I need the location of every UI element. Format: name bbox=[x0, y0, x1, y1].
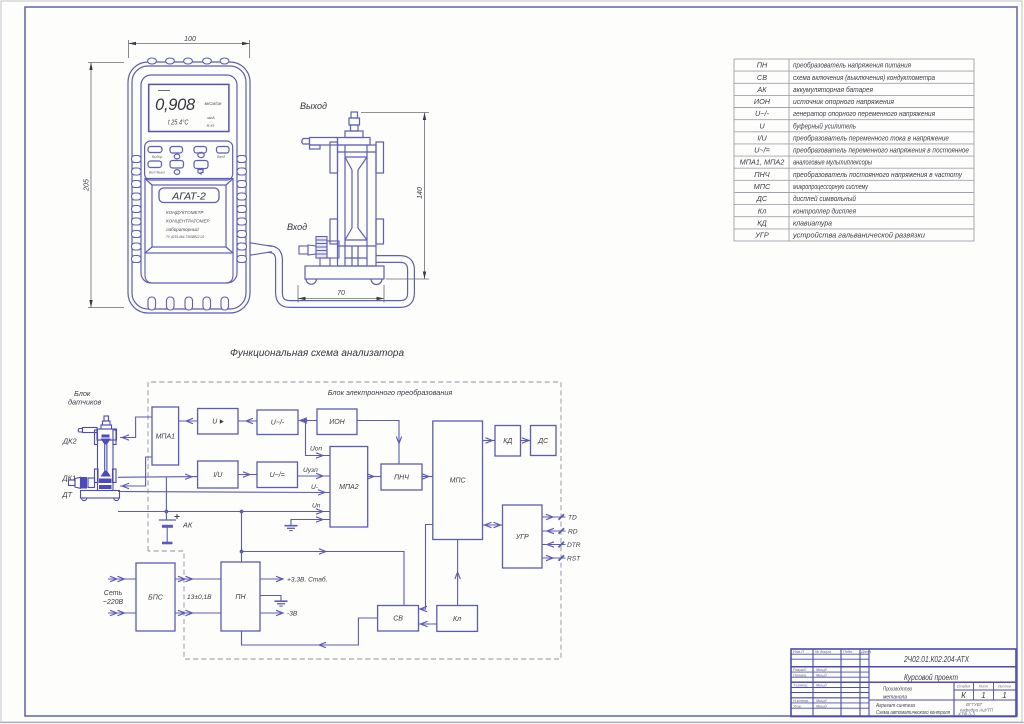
svg-text:Агрегат синтеза: Агрегат синтеза bbox=[875, 703, 915, 709]
svg-text:Провер.: Провер. bbox=[793, 673, 807, 677]
svg-text:Листов: Листов bbox=[997, 685, 1011, 689]
svg-text:Дата: Дата bbox=[860, 650, 871, 654]
svg-text:Функциональная схема анализато: Функциональная схема анализатора bbox=[230, 348, 405, 359]
svg-text:Uузп: Uузп bbox=[303, 467, 318, 474]
svg-text:дисплей символьный: дисплей символьный bbox=[793, 194, 856, 203]
svg-text:Блок электронного преобразован: Блок электронного преобразования bbox=[328, 388, 453, 397]
svg-text:МПС: МПС bbox=[754, 182, 771, 191]
svg-text:буферный усилитель: буферный усилитель bbox=[793, 121, 856, 130]
svg-text:контроллер дисплея: контроллер дисплея bbox=[793, 206, 856, 215]
svg-text:схема включения (выключения) к: схема включения (выключения) кондуктомет… bbox=[793, 73, 935, 82]
svg-text:генератор опорного переменного: генератор опорного переменного напряжени… bbox=[793, 109, 935, 118]
svg-text:Курсовой проект: Курсовой проект bbox=[904, 673, 958, 682]
svg-text:аккумуляторная батарея: аккумуляторная батарея bbox=[793, 85, 873, 94]
svg-text:ДС: ДС bbox=[537, 438, 549, 445]
svg-text:СВ: СВ bbox=[757, 73, 767, 82]
svg-text:Мищд: Мищд bbox=[816, 668, 827, 672]
svg-text:метанола: метанола bbox=[883, 695, 907, 701]
svg-text:Производство: Производство bbox=[883, 687, 912, 693]
svg-text:лабораторный: лабораторный bbox=[165, 226, 199, 232]
svg-text:АК: АК bbox=[182, 521, 193, 530]
svg-text:~220В: ~220В bbox=[103, 599, 124, 606]
svg-text:U: U bbox=[759, 121, 765, 130]
svg-text:АК: АК bbox=[756, 85, 767, 94]
svg-text:КД: КД bbox=[757, 218, 766, 227]
svg-text:ДТ: ДТ bbox=[62, 490, 73, 499]
svg-text:ИОН: ИОН bbox=[329, 419, 345, 426]
svg-text:RST: RST bbox=[567, 556, 581, 563]
svg-text:ТУ 4215-464-73638812-01: ТУ 4215-464-73638812-01 bbox=[166, 235, 204, 239]
svg-text:ДК1: ДК1 bbox=[62, 474, 77, 483]
svg-text:устройства гальванической разв: устройства гальванической развязки bbox=[792, 231, 925, 240]
svg-text:м.кг: м.кг bbox=[207, 123, 215, 128]
svg-text:Подп.: Подп. bbox=[843, 650, 853, 654]
svg-text:УГР: УГР bbox=[515, 534, 529, 541]
svg-text:№ докум.: № докум. bbox=[815, 650, 832, 654]
svg-text:мкА: мкА bbox=[207, 115, 215, 120]
svg-text:КД: КД bbox=[503, 438, 512, 445]
svg-text:DTR: DTR bbox=[567, 542, 581, 549]
svg-text:МПА2: МПА2 bbox=[339, 484, 359, 491]
svg-text:Утв.: Утв. bbox=[793, 704, 802, 708]
svg-text:ВГТУВТ: ВГТУВТ bbox=[966, 702, 982, 707]
svg-text:U~/-: U~/- bbox=[271, 420, 285, 427]
svg-text:Схема автоматического контроля: Схема автоматического контроля bbox=[876, 710, 950, 716]
svg-text:+3,3В. Стаб.: +3,3В. Стаб. bbox=[287, 576, 328, 584]
svg-text:Кл: Кл bbox=[758, 206, 766, 215]
svg-text:Un: Un bbox=[312, 503, 321, 510]
svg-text:1: 1 bbox=[981, 691, 985, 700]
svg-text:ПНЧ: ПНЧ bbox=[394, 474, 409, 481]
svg-text:преобразователь напряжения пит: преобразователь напряжения питания bbox=[793, 61, 911, 70]
svg-text:2Ч02.01.К02.204-АТХ: 2Ч02.01.К02.204-АТХ bbox=[903, 655, 969, 664]
svg-text:Т.контр.: Т.контр. bbox=[793, 684, 808, 688]
svg-text:микропроцессорную систему: микропроцессорную систему bbox=[793, 182, 869, 191]
svg-text:Н.контр.: Н.контр. bbox=[793, 699, 809, 703]
svg-text:УГР: УГР bbox=[754, 231, 769, 240]
svg-text:Мищд: Мищд bbox=[816, 704, 827, 708]
svg-text:100: 100 bbox=[184, 36, 196, 43]
svg-text:ХТФ-3-3: ХТФ-3-3 bbox=[957, 712, 975, 717]
svg-text:U~/=: U~/= bbox=[754, 146, 771, 155]
svg-text:140: 140 bbox=[417, 187, 424, 199]
svg-text:Вкл=Выкл: Вкл=Выкл bbox=[149, 171, 165, 175]
svg-text:клавиатура: клавиатура bbox=[793, 218, 832, 227]
svg-text:TD: TD bbox=[568, 515, 577, 522]
svg-text:0,908: 0,908 bbox=[155, 96, 196, 114]
svg-text:U-: U- bbox=[311, 484, 319, 491]
svg-text:Лист: Лист bbox=[978, 685, 988, 689]
svg-text:Uоп: Uоп bbox=[310, 446, 322, 453]
svg-text:датчиков: датчиков bbox=[68, 398, 102, 407]
svg-text:Выбор: Выбор bbox=[152, 155, 163, 159]
svg-text:Выход: Выход bbox=[300, 101, 327, 111]
svg-text:Мищд: Мищд bbox=[816, 673, 827, 677]
svg-text:Разраб.: Разраб. bbox=[793, 668, 807, 672]
svg-text:Изм.Л: Изм.Л bbox=[793, 650, 804, 654]
svg-text:I/U: I/U bbox=[757, 134, 767, 143]
svg-text:МПА1, МПА2: МПА1, МПА2 bbox=[740, 158, 785, 167]
svg-text:U~/-: U~/- bbox=[755, 109, 770, 118]
svg-text:ДС: ДС bbox=[756, 194, 768, 203]
svg-text:МПА1: МПА1 bbox=[156, 433, 176, 440]
svg-text:преобразователь переменного то: преобразователь переменного тока в напря… bbox=[793, 134, 949, 143]
svg-text:ПН: ПН bbox=[235, 594, 246, 601]
svg-text:70: 70 bbox=[337, 290, 345, 297]
svg-text:преобразователь переменного на: преобразователь переменного напряжения в… bbox=[793, 146, 969, 155]
svg-text:RD: RD bbox=[568, 529, 578, 536]
svg-text:I/U: I/U bbox=[213, 472, 223, 479]
svg-text:аналоговые мультиплексоры: аналоговые мультиплексоры bbox=[793, 158, 872, 167]
svg-text:СВ: СВ bbox=[393, 616, 403, 623]
svg-text:Ввод: Ввод bbox=[217, 155, 225, 159]
svg-text:Мищд: Мищд bbox=[816, 684, 827, 688]
svg-text:Мищд: Мищд bbox=[816, 699, 827, 703]
svg-text:t 25.4°C: t 25.4°C bbox=[168, 118, 189, 127]
svg-text:13±0,1В: 13±0,1В bbox=[187, 594, 212, 601]
svg-text:Стадия: Стадия bbox=[957, 685, 971, 689]
svg-text:источник опорного напряжения: источник опорного напряжения bbox=[793, 97, 894, 106]
svg-text:Сеть: Сеть bbox=[104, 590, 123, 597]
svg-text:преобразователь постоянного на: преобразователь постоянного напряжения в… bbox=[793, 170, 963, 179]
svg-text:Вход: Вход bbox=[287, 222, 307, 232]
svg-text:МПС: МПС bbox=[450, 478, 467, 485]
svg-text:ПН: ПН bbox=[757, 61, 768, 70]
svg-text:ДК2: ДК2 bbox=[62, 437, 77, 446]
svg-text:КОНЦЕНТРАТОМЕР: КОНЦЕНТРАТОМЕР bbox=[166, 219, 211, 224]
svg-text:БПС: БПС bbox=[148, 594, 164, 601]
svg-text:ПНЧ: ПНЧ bbox=[754, 170, 770, 179]
svg-text:ИОН: ИОН bbox=[754, 97, 771, 106]
svg-text:-3В: -3В bbox=[287, 611, 298, 618]
svg-text:1: 1 bbox=[1002, 691, 1006, 700]
svg-text:АГАТ-2: АГАТ-2 bbox=[171, 191, 206, 203]
svg-text:КОНДУКТОМЕТР: КОНДУКТОМЕТР bbox=[166, 210, 204, 215]
svg-text:205: 205 bbox=[84, 179, 91, 192]
svg-text:U~/=: U~/= bbox=[270, 472, 285, 479]
svg-text:Кл: Кл bbox=[453, 616, 461, 623]
svg-text:мкСм/см: мкСм/см bbox=[205, 101, 222, 106]
